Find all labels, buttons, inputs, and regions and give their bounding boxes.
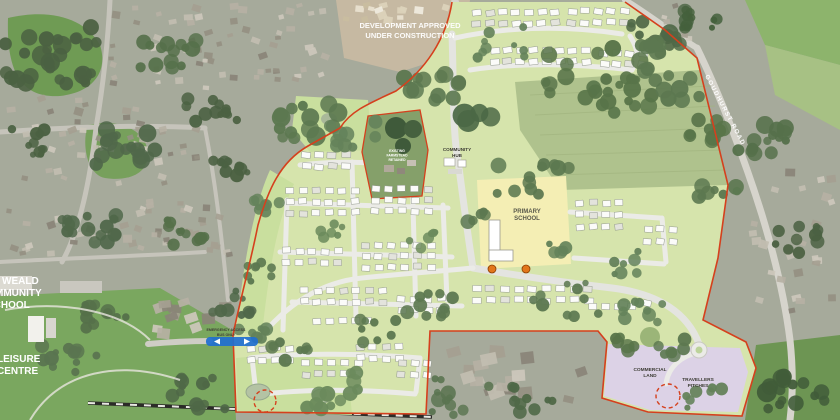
access-note-line1: EMERGENCY ACCESS	[207, 328, 247, 332]
house	[411, 360, 420, 367]
house	[410, 372, 418, 379]
house	[575, 211, 583, 217]
school-left-label-line1: WEALD	[2, 276, 39, 287]
house	[275, 36, 281, 40]
house	[327, 298, 336, 305]
tree	[437, 376, 444, 383]
tree	[369, 115, 383, 129]
tree	[507, 382, 517, 392]
tree	[710, 17, 717, 24]
house	[366, 287, 374, 293]
tree	[658, 300, 666, 308]
tree	[715, 382, 728, 395]
tree	[177, 61, 186, 70]
house	[298, 198, 306, 205]
tree	[21, 29, 37, 45]
house	[600, 60, 610, 67]
tree	[446, 90, 461, 105]
tree	[596, 98, 609, 111]
house	[520, 351, 534, 364]
house	[601, 303, 609, 309]
house	[265, 69, 271, 73]
tree	[449, 410, 458, 419]
house	[6, 208, 12, 213]
house	[590, 199, 598, 205]
house	[615, 223, 624, 230]
tree	[267, 263, 276, 272]
house	[6, 106, 15, 112]
tree	[618, 312, 632, 326]
tree	[457, 110, 479, 132]
tree	[179, 383, 186, 390]
tree	[178, 227, 185, 234]
tree	[480, 209, 491, 220]
house	[122, 107, 132, 115]
house	[379, 300, 387, 306]
house	[335, 248, 343, 254]
house	[301, 152, 311, 159]
tree	[630, 75, 639, 84]
house	[219, 72, 226, 78]
tree	[39, 31, 55, 47]
tree	[349, 366, 363, 380]
school-left-label-line3: SCHOOL	[0, 300, 30, 311]
tree	[678, 332, 692, 346]
house	[374, 242, 383, 249]
tree	[549, 159, 560, 170]
house	[123, 235, 132, 243]
tree	[160, 36, 175, 51]
tree	[164, 54, 179, 69]
roundabout	[691, 342, 707, 358]
house	[369, 355, 377, 362]
house	[375, 265, 383, 271]
tree	[80, 38, 93, 51]
tree	[421, 311, 431, 321]
house	[326, 318, 334, 324]
tree	[194, 232, 207, 245]
house	[321, 260, 329, 266]
house	[472, 9, 482, 16]
house	[514, 296, 523, 302]
house	[368, 344, 376, 350]
tree	[122, 313, 130, 321]
house	[198, 217, 206, 223]
tree	[339, 224, 345, 230]
house	[826, 175, 836, 183]
tree	[491, 158, 507, 174]
tree	[688, 14, 696, 22]
house	[301, 360, 309, 366]
tree	[773, 225, 785, 237]
house	[184, 14, 193, 20]
tree	[435, 289, 444, 298]
tree	[660, 349, 670, 359]
house	[472, 298, 481, 304]
tree	[302, 342, 312, 352]
tree	[61, 225, 73, 237]
tree	[525, 183, 538, 196]
house	[341, 359, 349, 365]
house	[374, 253, 383, 260]
house	[582, 59, 592, 66]
house	[194, 155, 200, 159]
tree	[708, 383, 717, 392]
tree	[81, 222, 95, 236]
tree	[286, 103, 298, 115]
house	[502, 58, 512, 65]
house	[601, 223, 609, 230]
tree	[693, 91, 704, 102]
tree	[775, 400, 784, 409]
tree	[682, 392, 690, 400]
house	[589, 223, 598, 230]
tree	[434, 70, 447, 83]
tree	[538, 158, 551, 171]
house	[327, 360, 335, 366]
tree	[763, 404, 773, 414]
tree	[189, 115, 202, 128]
leisure-centre-label-line2: CENTRE	[0, 366, 38, 377]
tree	[548, 397, 556, 405]
tree	[653, 341, 663, 351]
house	[749, 230, 757, 237]
house	[203, 85, 210, 90]
house	[498, 9, 507, 15]
house	[411, 197, 419, 203]
tree	[548, 246, 560, 258]
tree	[732, 144, 744, 156]
house	[486, 10, 496, 17]
tree	[244, 169, 250, 175]
house	[282, 247, 290, 253]
house	[59, 131, 67, 137]
tree	[493, 189, 502, 198]
tree	[608, 106, 620, 118]
house	[414, 6, 424, 14]
tree	[797, 377, 809, 389]
house	[524, 9, 533, 16]
tree	[627, 19, 636, 28]
house	[300, 287, 308, 293]
tree	[745, 145, 757, 157]
house	[383, 344, 391, 351]
house	[567, 48, 576, 55]
house	[328, 162, 338, 169]
house	[398, 198, 406, 205]
tree	[437, 306, 450, 319]
tree	[330, 219, 339, 228]
tree	[0, 66, 13, 79]
house	[387, 263, 396, 270]
house	[400, 252, 408, 258]
house	[566, 19, 576, 26]
tree	[329, 103, 348, 122]
house	[157, 328, 171, 340]
house	[398, 207, 406, 213]
tree	[267, 272, 275, 280]
tree	[564, 281, 571, 288]
tree	[217, 111, 224, 118]
house	[620, 7, 630, 14]
house	[397, 185, 405, 191]
tree	[663, 70, 674, 81]
tree	[671, 80, 689, 98]
tree	[400, 305, 414, 319]
house	[413, 263, 421, 269]
house	[175, 77, 183, 84]
house	[751, 237, 761, 245]
tree	[765, 146, 778, 159]
house	[511, 370, 525, 382]
house	[204, 52, 213, 59]
house	[643, 239, 651, 245]
tree	[423, 232, 434, 243]
house	[351, 198, 359, 205]
tree	[782, 136, 790, 144]
house	[355, 360, 363, 366]
tree	[357, 336, 369, 348]
commercial-land-label-line2: LAND	[643, 373, 657, 379]
tree	[691, 113, 705, 127]
house	[427, 253, 435, 259]
tree	[415, 291, 426, 302]
tree	[819, 395, 829, 405]
house	[351, 188, 359, 194]
tree	[670, 31, 682, 43]
house	[496, 382, 509, 391]
house	[669, 238, 678, 245]
tree	[629, 341, 640, 352]
primary-school-label-line2: SCHOOL	[514, 216, 540, 222]
tree	[311, 386, 326, 401]
house	[326, 287, 334, 293]
tree	[609, 257, 619, 267]
house	[285, 346, 294, 353]
tree	[793, 221, 805, 233]
house	[47, 250, 55, 256]
house	[203, 204, 211, 211]
house	[313, 318, 321, 324]
farm-note-line1: EXISTING	[389, 149, 405, 153]
house	[302, 163, 311, 169]
house	[424, 197, 432, 203]
house	[645, 226, 653, 232]
house	[238, 6, 248, 14]
tree	[810, 391, 819, 400]
travellers-pitches-label-line2: PITCHES	[688, 383, 710, 389]
farm-note-line2: FARMSTEAD	[386, 154, 408, 158]
primary-school-label-line1: PRIMARY	[513, 209, 540, 215]
tree	[709, 25, 715, 31]
construction-label-line1: DEVELOPMENT APPROVED	[360, 21, 462, 30]
tree	[557, 68, 574, 85]
house	[341, 163, 350, 169]
house	[314, 370, 322, 376]
construction-label-line2: UNDER CONSTRUCTION	[365, 31, 454, 40]
tree	[208, 95, 219, 106]
house	[282, 259, 290, 265]
tree	[38, 123, 51, 136]
tree	[220, 404, 229, 413]
house	[423, 360, 432, 367]
tree	[33, 146, 44, 157]
tree	[643, 306, 651, 314]
tree	[8, 125, 16, 133]
house	[550, 9, 560, 16]
house	[371, 208, 380, 215]
tree	[324, 120, 336, 132]
house	[485, 285, 494, 291]
tree	[369, 131, 381, 143]
house	[583, 286, 592, 292]
travellers-pitches-label-line1: TRAVELLERS	[682, 377, 714, 383]
house	[785, 168, 795, 176]
bus-gate-marker	[206, 337, 258, 346]
tree	[634, 298, 644, 308]
tree	[373, 336, 381, 344]
tree	[258, 325, 265, 332]
house	[274, 77, 280, 82]
house	[385, 196, 393, 202]
tree	[181, 101, 191, 111]
tree	[416, 243, 427, 254]
tree	[508, 185, 521, 198]
house	[669, 227, 677, 234]
tree	[788, 395, 804, 411]
tree	[196, 377, 209, 390]
house	[424, 208, 433, 215]
tree	[136, 35, 151, 50]
tree	[165, 217, 177, 229]
tree	[519, 23, 527, 31]
tree	[406, 237, 413, 244]
house	[550, 19, 560, 26]
tree	[358, 325, 365, 332]
house	[123, 115, 130, 121]
house	[111, 11, 120, 20]
tree	[629, 100, 641, 112]
house	[589, 303, 597, 309]
house	[382, 356, 390, 362]
house	[615, 199, 623, 205]
house	[258, 358, 266, 364]
tree	[89, 236, 101, 248]
house	[338, 210, 346, 216]
tree	[288, 132, 300, 144]
tree	[92, 352, 100, 360]
house	[321, 249, 329, 256]
tree	[148, 57, 163, 72]
tree	[536, 298, 549, 311]
tree	[680, 25, 686, 31]
house	[257, 69, 264, 75]
tree	[238, 311, 246, 319]
house	[308, 258, 316, 264]
house	[614, 212, 623, 219]
house	[428, 264, 436, 270]
tree	[390, 315, 401, 326]
house	[202, 59, 207, 63]
tree	[233, 116, 241, 124]
house	[796, 298, 805, 304]
house	[210, 241, 218, 248]
house	[656, 225, 664, 232]
house	[501, 297, 510, 303]
tree	[541, 47, 557, 63]
house	[254, 75, 260, 80]
community-hub-label-line1: COMMUNITY	[443, 147, 471, 152]
house	[327, 371, 335, 377]
house	[793, 268, 803, 277]
house	[177, 201, 183, 206]
house	[132, 6, 138, 11]
tree	[579, 294, 588, 303]
tree	[83, 212, 92, 221]
tree	[653, 318, 662, 327]
house	[491, 47, 500, 54]
tree	[44, 351, 59, 366]
house	[108, 56, 113, 60]
house	[314, 164, 324, 171]
house	[362, 265, 370, 271]
access-note-line2: BUS ONLY	[217, 333, 236, 337]
tree	[591, 47, 604, 60]
house	[286, 26, 295, 31]
tree	[568, 311, 580, 323]
tree	[83, 19, 99, 35]
tree	[546, 241, 553, 248]
tree	[594, 309, 603, 318]
tree	[109, 215, 118, 224]
commercial-land-label-line1: COMMERCIAL	[633, 367, 666, 373]
house	[602, 211, 610, 217]
house	[387, 242, 396, 249]
house	[528, 46, 538, 53]
tree	[74, 66, 92, 84]
tree	[793, 247, 805, 259]
tree	[582, 280, 588, 286]
house	[342, 151, 351, 157]
tree	[58, 215, 67, 224]
tree	[783, 244, 794, 255]
house	[529, 58, 539, 65]
house	[372, 198, 380, 204]
house	[589, 212, 597, 218]
tree	[80, 322, 92, 334]
tree	[335, 395, 347, 407]
house	[110, 44, 116, 49]
tree	[100, 134, 113, 147]
house	[570, 296, 579, 302]
house	[500, 286, 509, 292]
tree	[451, 76, 466, 91]
tree	[600, 73, 612, 85]
house	[75, 98, 83, 104]
house	[286, 210, 294, 216]
house	[22, 131, 29, 138]
house	[286, 188, 294, 194]
house	[428, 243, 436, 249]
tree	[812, 225, 823, 236]
house	[385, 208, 393, 214]
house	[515, 287, 524, 293]
tree	[167, 239, 179, 251]
house	[663, 19, 670, 25]
tree	[559, 241, 572, 254]
house	[389, 254, 397, 260]
tree	[772, 240, 780, 248]
